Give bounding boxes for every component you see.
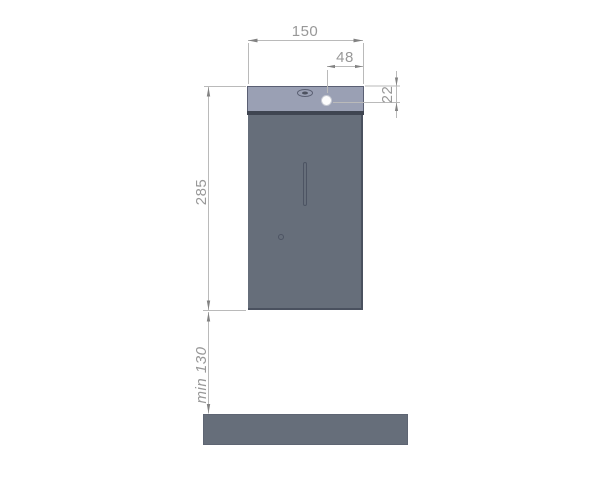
counter-surface (203, 414, 408, 445)
dimension-clearance: min 130 (193, 312, 210, 414)
dimension-height: 285 (193, 87, 246, 311)
dimension-label-hole-offset: 48 (336, 49, 354, 66)
arrowhead-up (395, 103, 398, 112)
arrowhead-down (395, 78, 398, 87)
arrowhead-up (207, 312, 210, 322)
dimension-label-clearance: min 130 (193, 346, 210, 403)
level-window-slot (303, 162, 307, 206)
arrowhead-down (207, 301, 210, 311)
dispenser-body (248, 115, 363, 310)
width-dimension-lines (248, 41, 364, 85)
arrowhead-down (207, 404, 210, 414)
arrowhead-right (354, 39, 364, 43)
dimension-label-hole-from-top: 22 (379, 86, 396, 104)
height-dimension-lines (203, 87, 246, 311)
arrowhead-right (355, 65, 363, 68)
lock-icon (297, 89, 313, 97)
dimension-label-height: 285 (193, 179, 210, 206)
indicator-hole (321, 95, 332, 106)
dimension-label-width: 150 (292, 23, 319, 40)
pinhole (278, 234, 284, 240)
arrowhead-left (248, 39, 258, 43)
lock-keyhole-dot (302, 92, 308, 95)
arrowhead-up (207, 87, 210, 97)
arrowhead-left (327, 65, 335, 68)
technical-drawing-canvas: 150 48 22 285 min 130 (0, 0, 600, 480)
dimension-width: 150 (248, 23, 364, 84)
